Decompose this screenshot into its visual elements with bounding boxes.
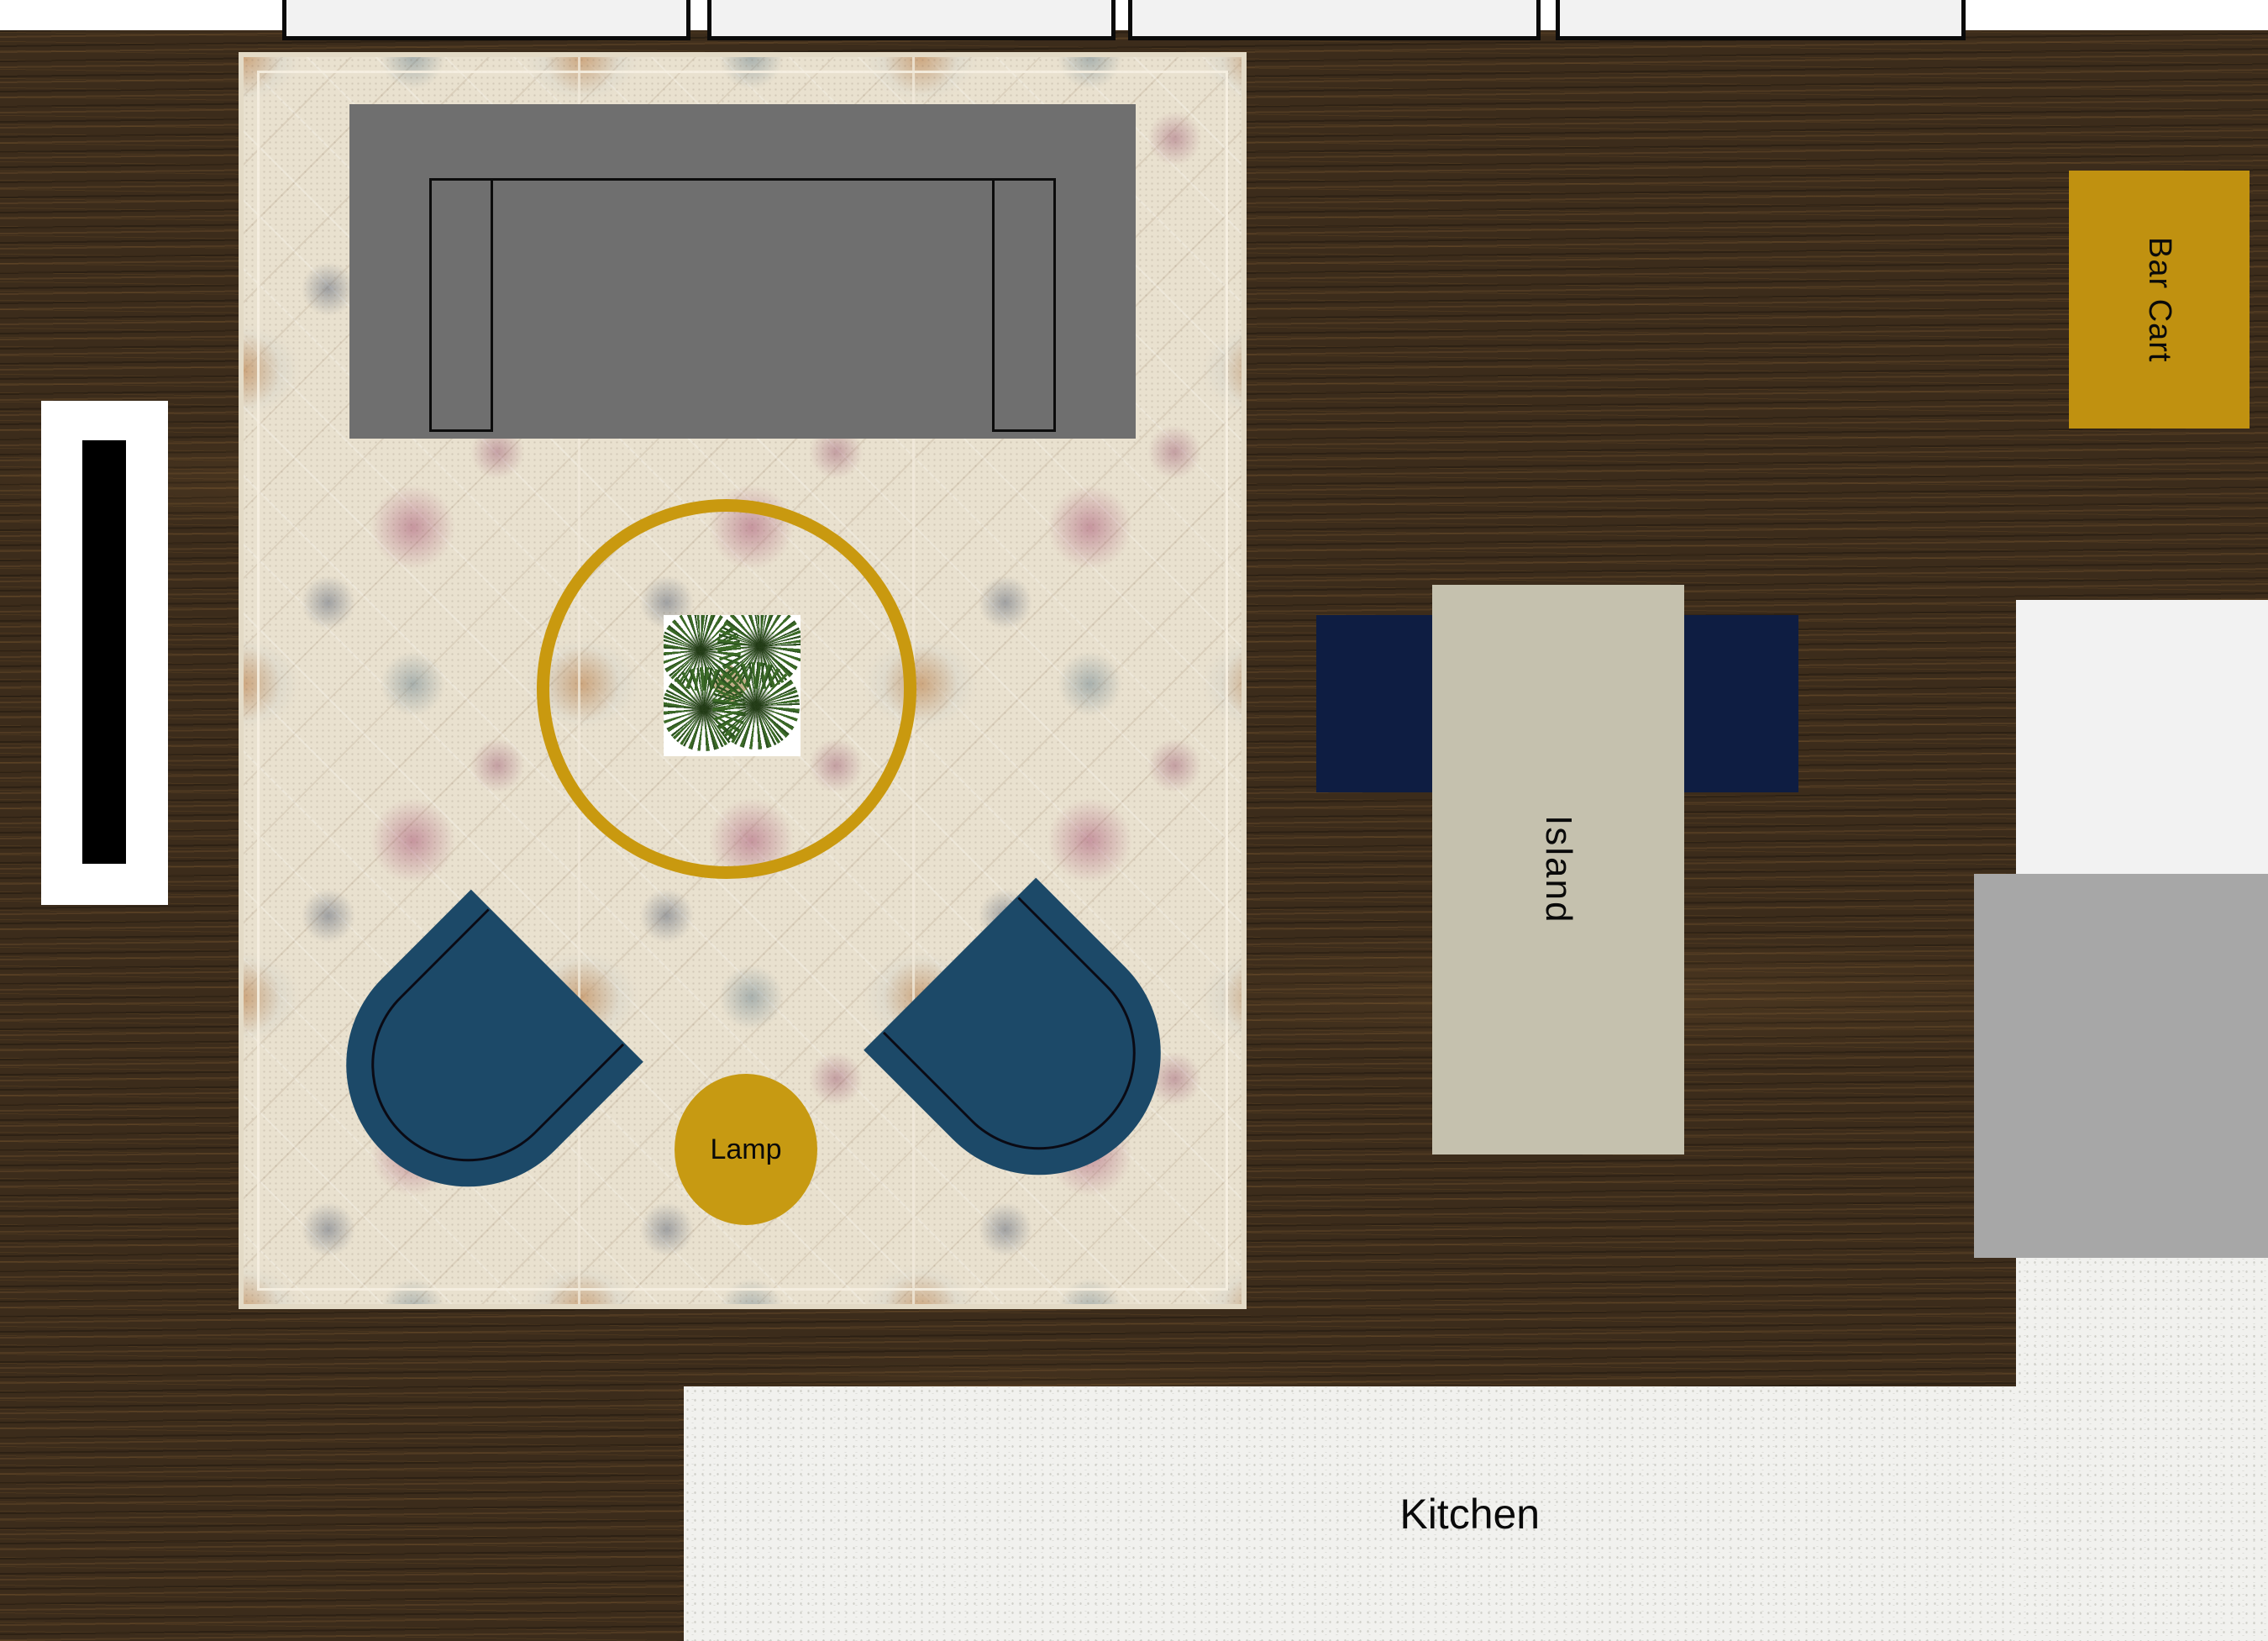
counter-dark-gray[interactable] (1974, 874, 2268, 1258)
sofa[interactable] (349, 104, 1136, 439)
tv (82, 440, 126, 864)
island-label: Island (1537, 815, 1579, 923)
window-4[interactable] (1556, 0, 1966, 40)
refrigerator[interactable] (2016, 600, 2268, 874)
kitchen-label: Kitchen (1399, 1490, 1540, 1538)
window-2[interactable] (707, 0, 1116, 40)
floor-plan-canvas: Lamp Island Bar Cart Kitchen (0, 0, 2268, 1641)
kitchen-island[interactable]: Island (1432, 585, 1684, 1154)
sofa-armrest-left (429, 178, 493, 432)
window-3[interactable] (1128, 0, 1541, 40)
plant[interactable] (664, 615, 801, 756)
kitchen-floor-right (2016, 1258, 2268, 1641)
floor-lamp[interactable]: Lamp (675, 1074, 817, 1225)
sofa-armrest-right (992, 178, 1056, 432)
lamp-label: Lamp (710, 1133, 781, 1166)
sofa-back-line (493, 178, 992, 181)
tv-console[interactable] (41, 401, 168, 905)
kitchen-floor: Kitchen (684, 1386, 2016, 1641)
bar-cart-label: Bar Cart (2141, 237, 2177, 362)
plant-frond-icon (712, 662, 800, 749)
window-1[interactable] (282, 0, 690, 40)
bar-cart[interactable]: Bar Cart (2069, 171, 2250, 429)
